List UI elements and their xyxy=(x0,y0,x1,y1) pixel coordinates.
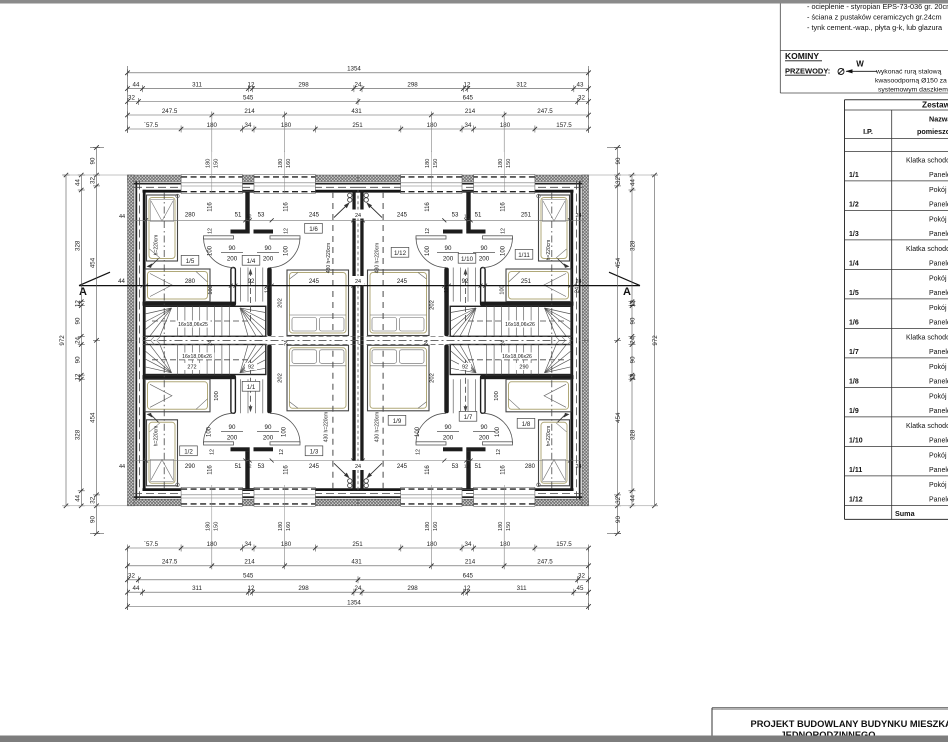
svg-text:90: 90 xyxy=(265,424,272,431)
svg-text:53: 53 xyxy=(452,212,459,219)
svg-text:90: 90 xyxy=(229,424,236,431)
svg-text:116: 116 xyxy=(425,202,431,212)
svg-text:1/1: 1/1 xyxy=(849,172,859,179)
svg-text:Panele: Panele xyxy=(929,319,948,326)
svg-text:Suma: Suma xyxy=(895,509,916,518)
svg-text:245: 245 xyxy=(309,212,320,219)
svg-text:545: 545 xyxy=(243,94,254,101)
svg-text:430 h=220cm: 430 h=220cm xyxy=(375,412,381,442)
svg-text:90: 90 xyxy=(481,424,488,431)
svg-text:180: 180 xyxy=(500,122,511,129)
svg-text:180: 180 xyxy=(281,541,292,548)
svg-text:44: 44 xyxy=(74,494,81,501)
svg-text:32: 32 xyxy=(615,496,622,503)
svg-text:100: 100 xyxy=(282,426,288,437)
svg-text:90: 90 xyxy=(445,424,452,431)
svg-text:h=220cm: h=220cm xyxy=(154,235,160,256)
svg-text:systemowym daszkiem: systemowym daszkiem xyxy=(878,87,948,94)
svg-text:Pokój: Pokój xyxy=(929,364,947,371)
svg-text:1/11: 1/11 xyxy=(518,252,530,259)
svg-text:90: 90 xyxy=(481,245,488,252)
svg-text:247.5: 247.5 xyxy=(537,108,553,115)
svg-text:Pokój: Pokój xyxy=(929,452,947,459)
svg-text:12: 12 xyxy=(284,228,290,234)
svg-text:251: 251 xyxy=(352,541,363,548)
svg-text:1/2: 1/2 xyxy=(849,201,859,208)
svg-text:1/12: 1/12 xyxy=(849,496,863,503)
svg-text:1/9: 1/9 xyxy=(393,418,402,425)
svg-text:100: 100 xyxy=(208,245,214,256)
svg-text:116: 116 xyxy=(425,465,431,475)
svg-text:1/8: 1/8 xyxy=(522,421,531,428)
svg-text:90: 90 xyxy=(629,356,636,363)
svg-text:12: 12 xyxy=(629,373,636,380)
svg-text:24: 24 xyxy=(355,464,361,470)
svg-text:32: 32 xyxy=(90,496,97,503)
svg-text:Klatka schodowa: Klatka schodowa xyxy=(906,423,948,430)
svg-text:32: 32 xyxy=(578,94,585,101)
svg-text:100: 100 xyxy=(415,426,421,437)
svg-text:Pokój: Pokój xyxy=(929,393,947,400)
svg-text:1354: 1354 xyxy=(347,599,361,606)
svg-text:180: 180 xyxy=(425,522,431,531)
svg-text:116: 116 xyxy=(501,202,507,212)
svg-text:180: 180 xyxy=(281,122,292,129)
svg-text:1/4: 1/4 xyxy=(849,260,859,267)
svg-text:150: 150 xyxy=(433,159,439,168)
svg-text:Panele: Panele xyxy=(929,437,948,444)
svg-text:24: 24 xyxy=(208,340,214,346)
svg-text:90: 90 xyxy=(615,516,622,523)
svg-text:53: 53 xyxy=(452,463,459,470)
svg-text:Panele: Panele xyxy=(929,172,948,179)
svg-text:245: 245 xyxy=(309,463,320,470)
svg-text:251: 251 xyxy=(521,212,532,219)
svg-text:Panele: Panele xyxy=(929,378,948,385)
svg-text:1/5: 1/5 xyxy=(849,290,859,297)
svg-text:180: 180 xyxy=(498,522,504,531)
svg-text:12: 12 xyxy=(464,464,470,469)
svg-text:32: 32 xyxy=(128,94,135,101)
svg-text:16x18,06x25: 16x18,06x25 xyxy=(178,322,208,328)
svg-text:A: A xyxy=(623,286,631,298)
svg-text:12: 12 xyxy=(464,81,471,88)
svg-text:328: 328 xyxy=(74,429,81,440)
svg-text:90: 90 xyxy=(615,157,622,164)
svg-text:h=220cm: h=220cm xyxy=(546,240,552,261)
svg-text:312: 312 xyxy=(516,81,527,88)
svg-text:44: 44 xyxy=(74,179,81,186)
svg-text:24: 24 xyxy=(575,464,581,470)
svg-text:100: 100 xyxy=(214,391,220,401)
svg-text:180: 180 xyxy=(500,541,511,548)
svg-text:180: 180 xyxy=(498,159,504,168)
svg-text:160: 160 xyxy=(433,522,439,531)
svg-text:51: 51 xyxy=(475,212,482,219)
svg-text:298: 298 xyxy=(298,585,309,592)
svg-text:180: 180 xyxy=(205,522,211,531)
svg-text:150: 150 xyxy=(213,159,219,168)
svg-text:53: 53 xyxy=(258,463,265,470)
svg-text:280: 280 xyxy=(525,463,536,470)
svg-text:1/6: 1/6 xyxy=(849,319,859,326)
svg-text:454: 454 xyxy=(615,257,622,268)
svg-text:245: 245 xyxy=(397,278,408,285)
svg-text:kwasoodporną Ø150 za: kwasoodporną Ø150 za xyxy=(875,78,947,85)
svg-text:200: 200 xyxy=(443,435,454,442)
svg-text:202: 202 xyxy=(430,373,436,383)
svg-text:90: 90 xyxy=(229,245,236,252)
svg-text:430 h=220cm: 430 h=220cm xyxy=(326,243,332,273)
svg-text:116: 116 xyxy=(208,202,214,212)
svg-text:431: 431 xyxy=(351,559,362,566)
svg-text:100: 100 xyxy=(208,285,214,294)
svg-text:180: 180 xyxy=(427,122,438,129)
svg-text:214: 214 xyxy=(465,559,476,566)
svg-text:116: 116 xyxy=(284,202,290,212)
svg-text:298: 298 xyxy=(407,585,418,592)
svg-text:328: 328 xyxy=(629,240,636,251)
svg-text:W: W xyxy=(856,60,864,69)
svg-text:43: 43 xyxy=(577,81,584,88)
svg-text:200: 200 xyxy=(263,435,274,442)
svg-text:12: 12 xyxy=(248,585,255,592)
svg-text:12: 12 xyxy=(464,214,470,219)
svg-text:454: 454 xyxy=(90,257,97,268)
svg-text:100: 100 xyxy=(425,245,431,256)
svg-text:24: 24 xyxy=(284,340,290,346)
svg-text:92: 92 xyxy=(462,278,469,285)
svg-text:200: 200 xyxy=(479,435,490,442)
svg-text:12: 12 xyxy=(425,228,431,234)
svg-text:180: 180 xyxy=(278,159,284,168)
svg-text:Klatka schodowa: Klatka schodowa xyxy=(906,334,948,341)
svg-text:12: 12 xyxy=(279,449,285,455)
svg-text:328: 328 xyxy=(629,429,636,440)
svg-text:12: 12 xyxy=(501,228,507,234)
svg-text:Panele: Panele xyxy=(929,231,948,238)
svg-text:202: 202 xyxy=(278,373,284,383)
svg-text:44: 44 xyxy=(133,81,140,88)
svg-text:53: 53 xyxy=(258,212,265,219)
svg-text:KOMINY: KOMINY xyxy=(785,51,819,61)
svg-text:545: 545 xyxy=(243,573,254,580)
svg-text:90: 90 xyxy=(90,157,97,164)
svg-text:h=220cm: h=220cm xyxy=(154,426,160,447)
svg-text:180: 180 xyxy=(425,159,431,168)
svg-text:Klatka schodowa: Klatka schodowa xyxy=(906,246,948,253)
svg-text:92: 92 xyxy=(462,365,468,371)
svg-text:290: 290 xyxy=(519,365,528,371)
svg-text:200: 200 xyxy=(479,256,490,263)
svg-text:1/7: 1/7 xyxy=(464,414,473,421)
svg-text:1/12: 1/12 xyxy=(394,250,407,257)
svg-text:157.5: 157.5 xyxy=(556,541,572,548)
svg-text:16x18,06x26: 16x18,06x26 xyxy=(182,354,212,360)
svg-text:100: 100 xyxy=(500,285,506,294)
svg-text:34: 34 xyxy=(465,541,472,548)
svg-text:245: 245 xyxy=(309,278,320,285)
svg-text:328: 328 xyxy=(74,240,81,251)
svg-text:180: 180 xyxy=(427,541,438,548)
svg-text:32: 32 xyxy=(128,573,135,580)
svg-text:24: 24 xyxy=(575,287,581,293)
svg-text:200: 200 xyxy=(443,256,454,263)
svg-text:247.5: 247.5 xyxy=(537,559,553,566)
svg-text:150: 150 xyxy=(506,159,512,168)
svg-text:1/2: 1/2 xyxy=(184,449,193,456)
svg-text:290: 290 xyxy=(185,463,196,470)
svg-text:100: 100 xyxy=(501,245,507,256)
svg-text:- ściana z pustaków ceramiczyc: - ściana z pustaków ceramiczych gr.24cm xyxy=(807,13,942,22)
svg-text:972: 972 xyxy=(652,335,659,346)
svg-text:16x18,06x26: 16x18,06x26 xyxy=(502,354,532,360)
svg-text:202: 202 xyxy=(278,298,284,308)
svg-text:32: 32 xyxy=(90,177,97,184)
svg-text:Pokój: Pokój xyxy=(929,305,947,312)
svg-text:A: A xyxy=(79,286,87,298)
svg-text:200: 200 xyxy=(227,435,238,442)
svg-text:1/5: 1/5 xyxy=(186,258,195,265)
svg-text:12: 12 xyxy=(444,287,450,293)
svg-text:1/10: 1/10 xyxy=(461,256,474,263)
svg-text:24: 24 xyxy=(424,340,430,346)
svg-text:pomieszcze: pomieszcze xyxy=(917,127,948,136)
svg-text:272: 272 xyxy=(187,365,196,371)
svg-text:116: 116 xyxy=(501,465,507,475)
svg-text:214: 214 xyxy=(465,108,476,115)
svg-text:251: 251 xyxy=(521,278,532,285)
svg-text:150: 150 xyxy=(506,522,512,531)
svg-text:280: 280 xyxy=(185,278,196,285)
svg-text:431: 431 xyxy=(351,108,362,115)
svg-text:454: 454 xyxy=(615,412,622,423)
svg-text:298: 298 xyxy=(298,81,309,88)
svg-text:I.P.: I.P. xyxy=(863,127,873,136)
svg-text:12: 12 xyxy=(208,228,214,234)
svg-text:Pokój: Pokój xyxy=(929,275,947,282)
svg-text:24: 24 xyxy=(575,213,581,219)
svg-text:Nazwa: Nazwa xyxy=(929,115,948,124)
svg-text:12: 12 xyxy=(415,449,421,455)
svg-text:PRZEWODY:: PRZEWODY: xyxy=(785,67,830,76)
svg-text:- tynk cement.-wap., płyta g-k: - tynk cement.-wap., płyta g-k, lub glaz… xyxy=(807,23,943,32)
svg-text:44: 44 xyxy=(133,585,140,592)
svg-text:180: 180 xyxy=(207,122,218,129)
svg-text:Panele: Panele xyxy=(929,201,948,208)
svg-text:51: 51 xyxy=(235,212,242,219)
svg-text:24: 24 xyxy=(500,340,506,346)
svg-text:´57.5: ´57.5 xyxy=(144,541,159,548)
svg-text:Panele: Panele xyxy=(929,349,948,356)
svg-text:45: 45 xyxy=(577,585,584,592)
svg-text:160: 160 xyxy=(286,159,292,168)
svg-text:1/3: 1/3 xyxy=(849,231,859,238)
svg-text:157.5: 157.5 xyxy=(556,122,572,129)
svg-text:90: 90 xyxy=(265,245,272,252)
svg-text:1/1: 1/1 xyxy=(247,384,256,391)
svg-text:12: 12 xyxy=(74,300,81,307)
svg-text:90: 90 xyxy=(629,317,636,324)
svg-text:430 h=220cm: 430 h=220cm xyxy=(324,412,330,442)
svg-text:Panele: Panele xyxy=(929,467,948,474)
svg-text:´57.5: ´57.5 xyxy=(144,122,159,129)
svg-text:298: 298 xyxy=(407,81,418,88)
svg-text:430 h=220cm: 430 h=220cm xyxy=(375,243,381,273)
svg-text:16x18,06x26: 16x18,06x26 xyxy=(505,322,535,328)
svg-text:972: 972 xyxy=(59,335,66,346)
svg-text:1/10: 1/10 xyxy=(849,437,863,444)
svg-text:44: 44 xyxy=(629,179,636,186)
svg-text:Pokój: Pokój xyxy=(929,482,947,489)
svg-text:12: 12 xyxy=(210,449,216,455)
svg-text:245: 245 xyxy=(397,212,408,219)
svg-text:116: 116 xyxy=(208,465,214,475)
svg-text:1/4: 1/4 xyxy=(247,258,256,265)
svg-text:180: 180 xyxy=(205,159,211,168)
svg-text:12: 12 xyxy=(248,81,255,88)
svg-text:12: 12 xyxy=(74,373,81,380)
svg-text:116: 116 xyxy=(284,465,290,475)
svg-text:1/8: 1/8 xyxy=(849,378,859,385)
svg-text:247.5: 247.5 xyxy=(162,559,178,566)
svg-text:454: 454 xyxy=(90,412,97,423)
svg-text:1/6: 1/6 xyxy=(309,226,318,233)
svg-text:44: 44 xyxy=(119,464,125,470)
svg-text:51: 51 xyxy=(475,463,482,470)
svg-text:Pokój: Pokój xyxy=(929,216,947,223)
svg-text:34: 34 xyxy=(465,122,472,129)
svg-text:251: 251 xyxy=(352,122,363,129)
svg-text:92: 92 xyxy=(248,278,255,285)
svg-text:645: 645 xyxy=(463,94,474,101)
svg-text:1/3: 1/3 xyxy=(310,449,319,456)
svg-text:44: 44 xyxy=(119,214,125,220)
svg-text:160: 160 xyxy=(286,522,292,531)
svg-text:12: 12 xyxy=(629,300,636,307)
svg-text:1/11: 1/11 xyxy=(849,467,862,474)
svg-text:Panele: Panele xyxy=(929,408,948,415)
svg-text:100: 100 xyxy=(207,426,213,437)
svg-text:h=220cm: h=220cm xyxy=(546,426,552,447)
svg-text:311: 311 xyxy=(192,81,202,88)
svg-text:24: 24 xyxy=(74,336,81,343)
svg-text:32: 32 xyxy=(615,177,622,184)
svg-text:180: 180 xyxy=(207,541,218,548)
svg-text:44: 44 xyxy=(629,494,636,501)
svg-text:PROJEKT BUDOWLANY BUDYNKU MIE: PROJEKT BUDOWLANY BUDYNKU MIESZKALNEGO xyxy=(751,719,948,729)
svg-text:311: 311 xyxy=(517,585,527,592)
svg-text:12: 12 xyxy=(265,287,271,293)
svg-text:Pokój: Pokój xyxy=(929,187,947,194)
svg-text:1354: 1354 xyxy=(347,66,361,73)
svg-text:200: 200 xyxy=(263,256,274,263)
svg-text:214: 214 xyxy=(244,559,255,566)
svg-text:12: 12 xyxy=(246,464,252,469)
svg-text:24: 24 xyxy=(629,336,636,343)
svg-text:24: 24 xyxy=(355,81,362,88)
svg-text:92: 92 xyxy=(248,365,254,371)
svg-text:90: 90 xyxy=(445,245,452,252)
svg-text:24: 24 xyxy=(355,213,361,219)
svg-text:12: 12 xyxy=(246,214,252,219)
svg-text:200: 200 xyxy=(227,256,238,263)
svg-text:311: 311 xyxy=(192,585,202,592)
svg-text:645: 645 xyxy=(463,573,474,580)
svg-text:90: 90 xyxy=(74,356,81,363)
svg-text:1/7: 1/7 xyxy=(849,349,859,356)
svg-text:Zestawienie: Zestawienie xyxy=(922,100,948,110)
svg-text:12: 12 xyxy=(496,449,502,455)
svg-text:24: 24 xyxy=(355,279,361,285)
svg-text:100: 100 xyxy=(495,426,501,437)
svg-text:34: 34 xyxy=(245,541,252,548)
svg-text:51: 51 xyxy=(235,463,242,470)
svg-text:90: 90 xyxy=(90,516,97,523)
svg-text:100: 100 xyxy=(494,391,500,401)
svg-text:Panele: Panele xyxy=(929,290,948,297)
svg-text:24: 24 xyxy=(355,585,362,592)
svg-text:32: 32 xyxy=(578,573,585,580)
svg-text:150: 150 xyxy=(213,522,219,531)
svg-text:Klatka schodowa: Klatka schodowa xyxy=(906,157,948,164)
svg-text:90: 90 xyxy=(74,317,81,324)
svg-text:Panele: Panele xyxy=(929,496,948,503)
svg-text:1/9: 1/9 xyxy=(849,408,859,415)
svg-text:214: 214 xyxy=(244,108,255,115)
svg-text:12: 12 xyxy=(464,585,471,592)
svg-text:280: 280 xyxy=(185,212,196,219)
svg-text:34: 34 xyxy=(245,122,252,129)
svg-text:100: 100 xyxy=(284,245,290,256)
svg-text:Panele: Panele xyxy=(929,260,948,267)
svg-text:202: 202 xyxy=(430,300,436,310)
svg-text:180: 180 xyxy=(278,522,284,531)
svg-text:247.5: 247.5 xyxy=(162,108,178,115)
svg-text:wykonać rurą stalową: wykonać rurą stalową xyxy=(875,69,942,76)
svg-text:24: 24 xyxy=(575,279,581,285)
svg-text:44: 44 xyxy=(118,278,125,285)
svg-text:245: 245 xyxy=(397,463,408,470)
